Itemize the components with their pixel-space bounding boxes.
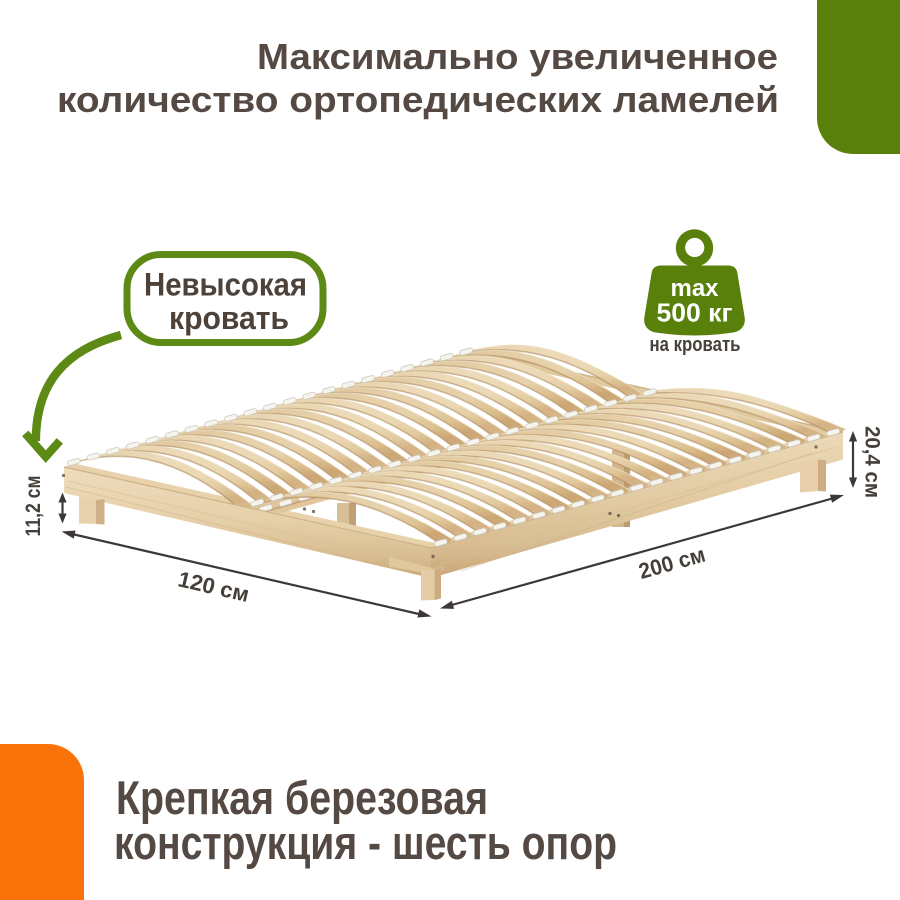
svg-text:Невысокая: Невысокая xyxy=(144,267,307,303)
svg-text:Максимально увеличенное: Максимально увеличенное xyxy=(257,36,778,77)
svg-text:на кровать: на кровать xyxy=(650,334,741,356)
svg-text:20,4 см: 20,4 см xyxy=(861,426,884,498)
svg-text:конструкция - шесть опор: конструкция - шесть опор xyxy=(114,816,617,869)
svg-text:11,2 см: 11,2 см xyxy=(22,476,45,537)
svg-text:кровать: кровать xyxy=(169,300,289,336)
svg-text:количество ортопедических ламе: количество ортопедических ламелей xyxy=(57,79,779,120)
svg-text:500 кг: 500 кг xyxy=(657,298,733,328)
